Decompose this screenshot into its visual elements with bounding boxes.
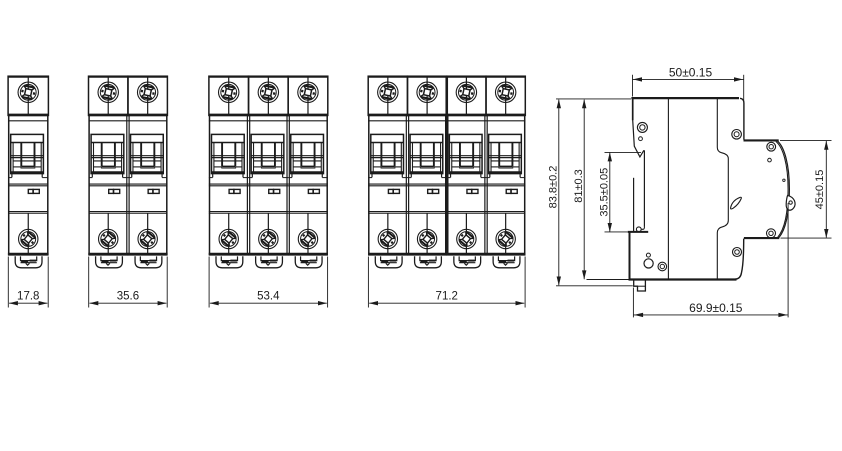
svg-text:17.8: 17.8 bbox=[17, 290, 39, 302]
svg-text:81±0.3: 81±0.3 bbox=[573, 169, 585, 203]
svg-text:71.2: 71.2 bbox=[436, 290, 458, 302]
svg-text:50±0.15: 50±0.15 bbox=[669, 66, 713, 80]
svg-text:83.8±0.2: 83.8±0.2 bbox=[548, 166, 560, 209]
svg-text:35.5±0.05: 35.5±0.05 bbox=[598, 168, 610, 217]
svg-text:69.9±0.15: 69.9±0.15 bbox=[689, 301, 743, 315]
svg-text:45±0.15: 45±0.15 bbox=[814, 170, 826, 210]
svg-text:35.6: 35.6 bbox=[117, 290, 139, 302]
svg-text:53.4: 53.4 bbox=[257, 290, 280, 302]
